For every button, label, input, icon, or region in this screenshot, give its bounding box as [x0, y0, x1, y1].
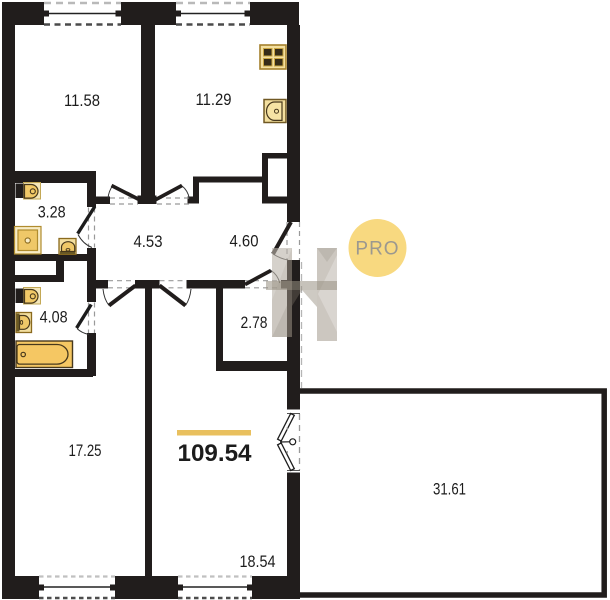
- svg-text:18.54: 18.54: [240, 553, 276, 571]
- svg-text:11.58: 11.58: [64, 92, 100, 110]
- svg-text:4.60: 4.60: [230, 233, 259, 251]
- svg-text:3.28: 3.28: [38, 204, 66, 222]
- svg-text:2.78: 2.78: [241, 314, 268, 332]
- svg-text:17.25: 17.25: [69, 442, 102, 460]
- svg-text:4.08: 4.08: [40, 309, 68, 327]
- svg-text:31.61: 31.61: [433, 481, 466, 499]
- svg-text:PRO: PRO: [355, 239, 399, 260]
- svg-text:11.29: 11.29: [196, 91, 232, 109]
- svg-text:4.53: 4.53: [134, 233, 163, 251]
- svg-text:109.54: 109.54: [178, 440, 253, 467]
